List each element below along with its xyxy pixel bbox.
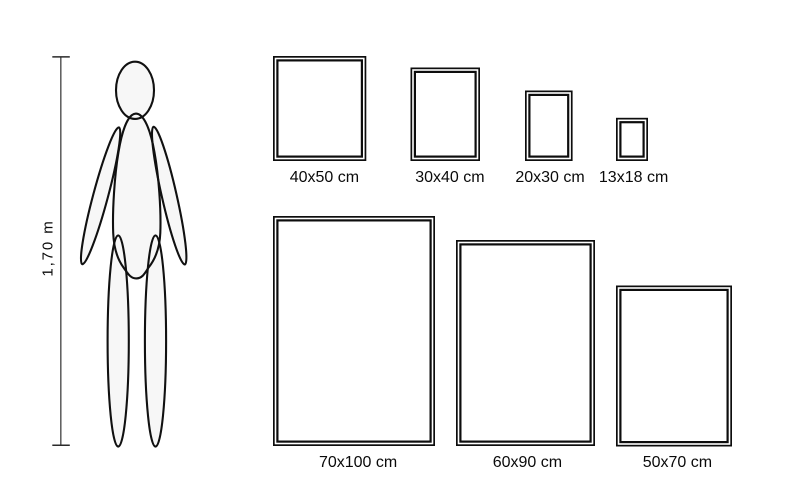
- svg-text:20x30 cm: 20x30 cm: [515, 169, 584, 186]
- svg-text:13x18 cm: 13x18 cm: [599, 169, 668, 186]
- svg-text:30x40 cm: 30x40 cm: [415, 169, 484, 186]
- svg-text:1,70 m: 1,70 m: [40, 219, 57, 276]
- svg-text:40x50 cm: 40x50 cm: [290, 169, 359, 186]
- svg-text:70x100 cm: 70x100 cm: [319, 454, 397, 471]
- svg-text:50x70 cm: 50x70 cm: [643, 454, 712, 471]
- svg-text:60x90 cm: 60x90 cm: [493, 454, 562, 471]
